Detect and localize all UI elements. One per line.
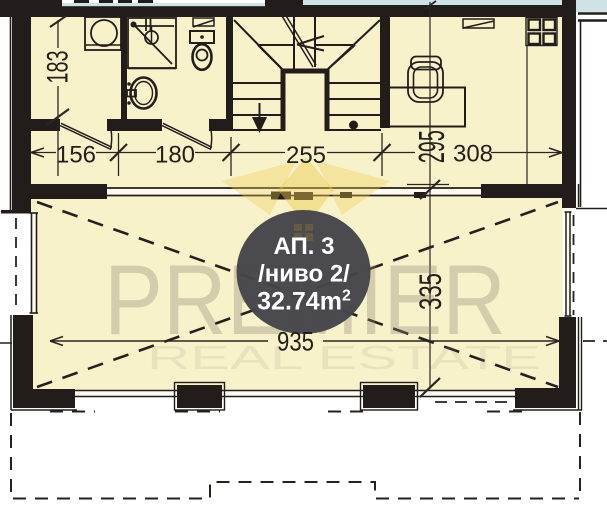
svg-text:935: 935	[277, 327, 314, 357]
svg-text:REAL ESTATE: REAL ESTATE	[147, 339, 541, 376]
svg-text:183: 183	[41, 51, 74, 84]
svg-text:335: 335	[413, 273, 448, 310]
svg-text:255: 255	[286, 142, 326, 169]
svg-text:32.74m2: 32.74m2	[257, 288, 351, 316]
svg-text:295: 295	[412, 130, 452, 163]
svg-text:АП. 3: АП. 3	[274, 233, 335, 260]
svg-text:308: 308	[453, 141, 493, 168]
svg-text:/ниво 2/: /ниво 2/	[258, 261, 350, 288]
svg-text:156: 156	[56, 142, 96, 169]
svg-text:180: 180	[155, 142, 195, 169]
